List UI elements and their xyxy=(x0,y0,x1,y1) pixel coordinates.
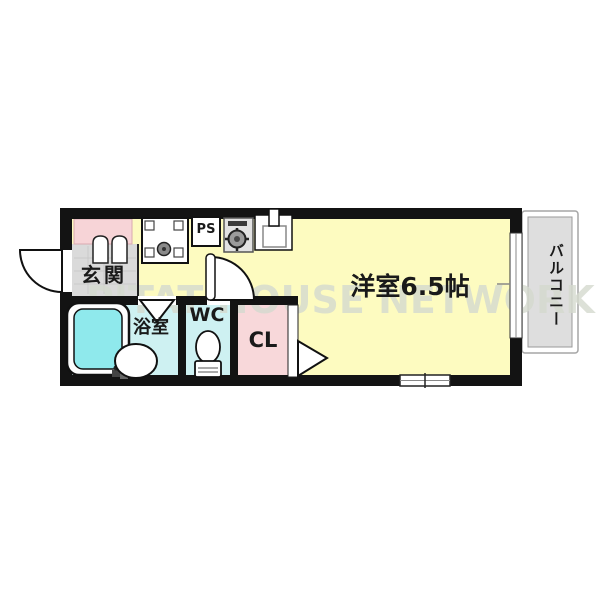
main-room-label: 洋室6.5帖 xyxy=(325,274,495,300)
toilet-icon xyxy=(195,331,221,377)
balcony-label: バルコニー xyxy=(537,243,563,363)
wall-right-upper xyxy=(510,208,522,233)
kitchen-sink-icon xyxy=(255,209,292,250)
entrance-door-swing-icon xyxy=(20,250,62,292)
floorplan-drawing: PITAT HOUSE NETWORK xyxy=(0,0,600,600)
entrance-label: 玄関 xyxy=(72,265,136,286)
wall-wc-cl xyxy=(230,296,238,377)
gas-stove-icon xyxy=(224,218,253,252)
pipe-space-label: PS xyxy=(192,223,220,237)
closet-label: CL xyxy=(238,329,288,351)
closet-door-track xyxy=(288,305,298,377)
washing-machine-pan-icon xyxy=(142,218,188,263)
toilet-label: WC xyxy=(184,306,230,326)
double-door-leaf-left xyxy=(93,236,108,263)
room-door-leaf xyxy=(206,254,215,300)
wall-right-lower xyxy=(510,338,522,386)
wall-left-upper xyxy=(60,208,72,250)
double-door-leaf-right xyxy=(112,236,127,263)
bathroom-label: 浴室 xyxy=(124,319,178,338)
floorplan-canvas: PITAT HOUSE NETWORK xyxy=(0,0,600,600)
